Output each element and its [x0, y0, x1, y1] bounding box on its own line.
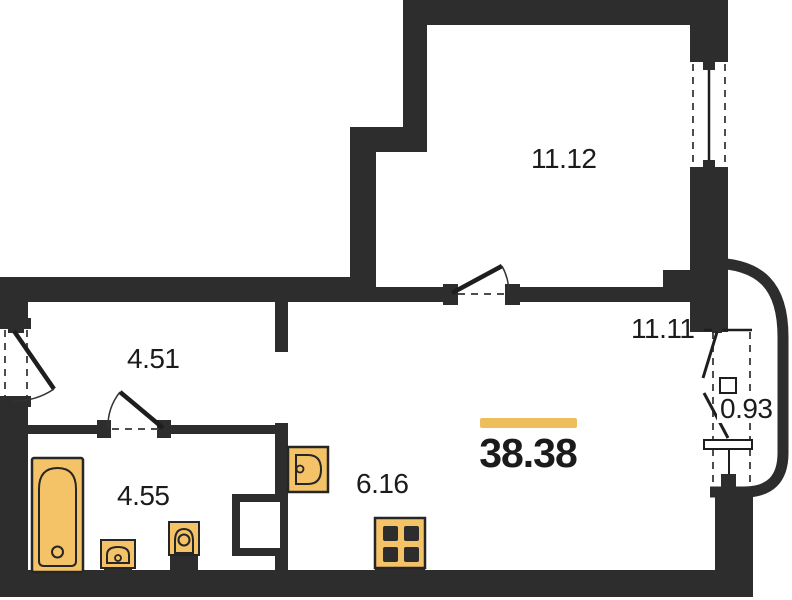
- entrance-door-icon: [5, 325, 54, 401]
- wall: [715, 487, 753, 575]
- wall: [0, 397, 28, 597]
- wall: [0, 277, 376, 302]
- room-area-label-bedroom: 11.12: [531, 145, 597, 173]
- washbasin-icon: [101, 540, 135, 572]
- door-post: [505, 284, 520, 305]
- room-area-label-living: 11.11: [631, 315, 694, 343]
- wall: [0, 570, 753, 597]
- wall: [376, 287, 447, 302]
- wall: [275, 302, 288, 352]
- window-icon: [690, 57, 728, 171]
- room-area-label-hallway: 4.51: [127, 345, 180, 373]
- total-area-label: 38.38: [458, 433, 598, 474]
- total-area-bar: [480, 418, 577, 428]
- wall: [690, 0, 728, 62]
- door-post: [443, 284, 458, 305]
- room-area-label-kitchen: 6.16: [356, 470, 409, 498]
- wall: [350, 127, 376, 302]
- room-area-label-balcony: 0.93: [717, 395, 776, 423]
- wall: [162, 425, 275, 434]
- floor-plan: 11.12 4.51 4.55 6.16 11.11 0.93 38.38: [0, 0, 792, 600]
- wall: [28, 425, 108, 434]
- wall: [663, 270, 728, 302]
- walls: [0, 0, 753, 597]
- wall: [690, 168, 728, 332]
- door-post: [97, 420, 111, 438]
- bedroom-door-icon: [452, 266, 509, 294]
- toilet-icon: [169, 522, 199, 571]
- room-area-label-bathroom: 4.55: [117, 482, 170, 510]
- bathtub-icon: [32, 458, 83, 572]
- kitchen-sink-icon: [288, 447, 328, 492]
- duct-shaft: [236, 498, 284, 552]
- stove-icon: [375, 518, 425, 573]
- wall: [403, 0, 728, 25]
- bathroom-door-icon: [108, 392, 163, 429]
- wall: [0, 277, 28, 323]
